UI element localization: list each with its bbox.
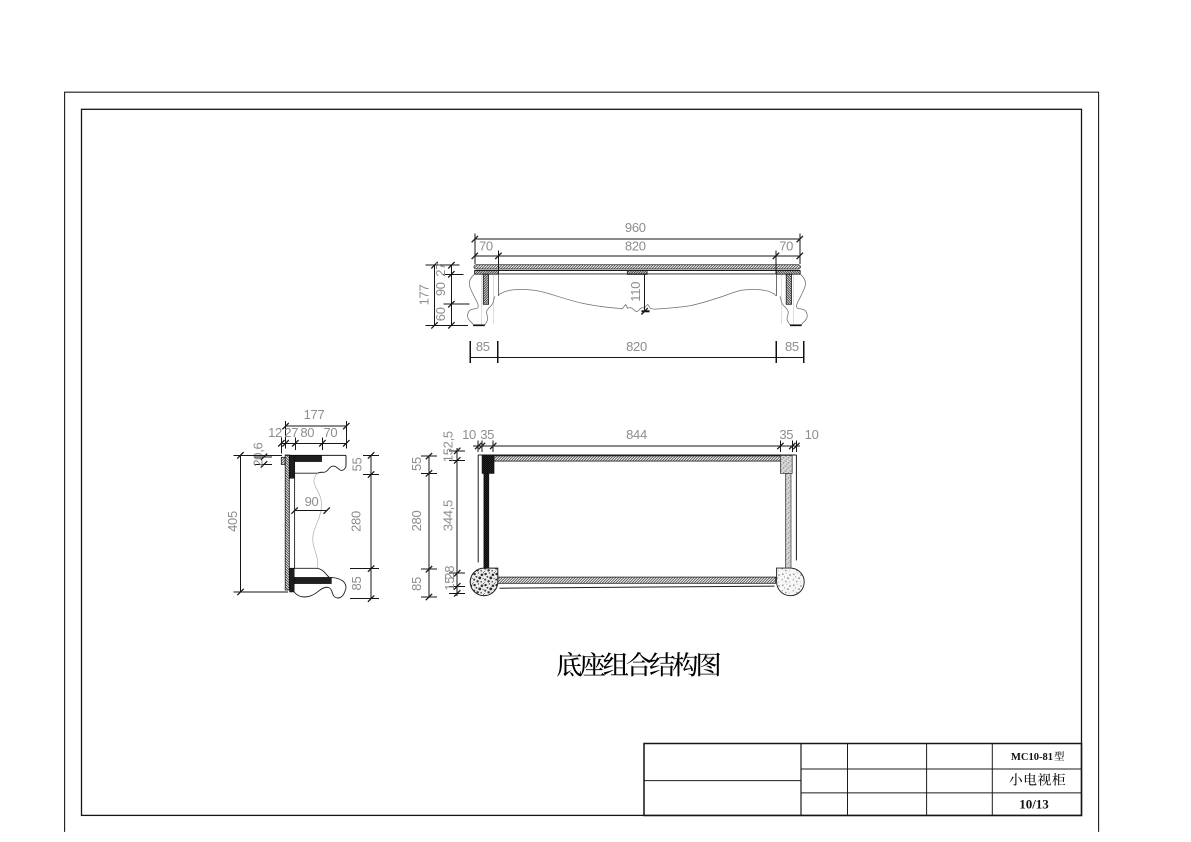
- svg-text:20,6: 20,6: [251, 442, 266, 466]
- svg-text:85: 85: [349, 577, 364, 591]
- svg-text:55: 55: [409, 457, 424, 471]
- svg-text:10: 10: [805, 427, 819, 442]
- svg-text:820: 820: [626, 339, 647, 354]
- svg-text:70: 70: [779, 239, 793, 254]
- svg-text:177: 177: [304, 407, 325, 422]
- svg-text:70: 70: [479, 239, 493, 254]
- svg-text:27: 27: [284, 425, 298, 440]
- svg-text:110: 110: [628, 282, 643, 302]
- svg-text:35: 35: [779, 427, 793, 442]
- svg-text:280: 280: [409, 511, 424, 532]
- svg-text:85: 85: [409, 577, 424, 591]
- svg-text:405: 405: [225, 511, 240, 532]
- svg-text:344,5: 344,5: [441, 500, 456, 531]
- svg-text:80: 80: [300, 425, 314, 440]
- svg-text:10/13: 10/13: [1019, 797, 1049, 812]
- svg-text:55: 55: [349, 458, 364, 472]
- svg-text:60: 60: [433, 307, 448, 321]
- svg-text:177: 177: [417, 285, 432, 306]
- svg-text:MC10-81: MC10-81: [1011, 752, 1053, 763]
- svg-text:90: 90: [305, 494, 319, 509]
- svg-text:27: 27: [433, 263, 448, 277]
- svg-text:85: 85: [476, 339, 490, 354]
- svg-text:90: 90: [433, 282, 448, 296]
- svg-text:70: 70: [323, 425, 337, 440]
- svg-text:15: 15: [442, 577, 457, 591]
- svg-text:152,5: 152,5: [441, 431, 456, 462]
- svg-text:820: 820: [625, 238, 646, 253]
- svg-text:280: 280: [348, 511, 363, 532]
- svg-text:10: 10: [462, 427, 476, 442]
- svg-text:844: 844: [626, 427, 647, 442]
- svg-text:35: 35: [480, 427, 494, 442]
- svg-text:960: 960: [625, 220, 646, 235]
- svg-text:12: 12: [268, 425, 282, 440]
- svg-text:85: 85: [785, 339, 799, 354]
